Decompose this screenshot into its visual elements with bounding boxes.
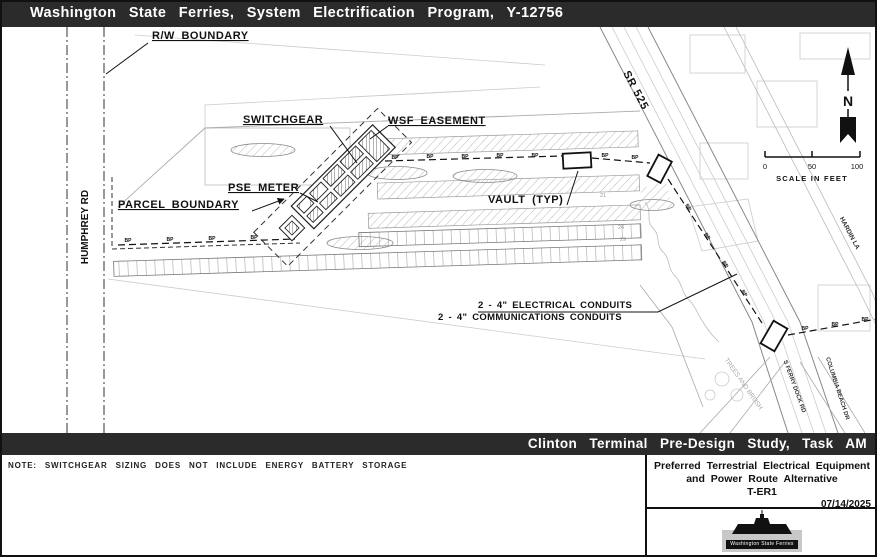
- bp-marker: BP: [832, 322, 840, 328]
- scale-50: 50: [808, 162, 816, 171]
- bp-marker: BP: [209, 236, 217, 242]
- pse-meter-label: PSE METER: [228, 182, 299, 194]
- sheet-title: Washington State Ferries, System Electri…: [30, 5, 563, 21]
- sheet-header-banner: Washington State Ferries, System Electri…: [0, 0, 877, 27]
- bp-marker: BP: [632, 155, 640, 161]
- stall-number: 24: [618, 225, 624, 231]
- title-line-1: Preferred Terrestrial Electrical Equipme…: [647, 460, 877, 473]
- site-plan-area: BP BP BP BP BP BP BP BP BP BP BP BP BP B…: [0, 27, 877, 433]
- vault-2: [647, 155, 672, 183]
- parcel-boundary-label: PARCEL BOUNDARY: [118, 199, 239, 211]
- vault-1: [563, 152, 592, 168]
- wsf-easement-label: WSF EASEMENT: [388, 115, 486, 127]
- hardin-la-label: HARDIN LA: [838, 216, 861, 251]
- bp-marker: BP: [602, 153, 610, 159]
- humphrey-rd-label: HUMPHREY RD: [80, 190, 91, 264]
- north-arrow: N: [840, 47, 856, 143]
- switchgear-label: SWITCHGEAR: [243, 114, 323, 126]
- s-ferry-dock-rd-label: S FERRY DOCK RD: [782, 360, 807, 415]
- vault-3: [761, 321, 788, 352]
- columbia-beach-dr-label: COLUMBIA BEACH DR: [824, 357, 850, 422]
- title-block-text: Preferred Terrestrial Electrical Equipme…: [647, 455, 877, 507]
- logo-area: Washington State Ferries: [647, 507, 877, 555]
- logo-text: Washington State Ferries: [726, 540, 798, 549]
- electrical-conduits-label: 2 - 4" ELECTRICAL CONDUITS: [478, 300, 632, 311]
- title-line-3: T-ER1: [647, 486, 877, 499]
- plan-sheet: Washington State Ferries, System Electri…: [0, 0, 877, 557]
- sheet-note: NOTE: SWITCHGEAR SIZING DOES NOT INCLUDE…: [8, 461, 407, 470]
- bp-marker: BP: [125, 238, 133, 244]
- scale-bar: [765, 151, 860, 157]
- bp-marker: BP: [497, 153, 505, 159]
- sheet-footer: NOTE: SWITCHGEAR SIZING DOES NOT INCLUDE…: [0, 455, 877, 557]
- bp-marker: BP: [862, 317, 870, 323]
- trees-label: TREES AND BRUSH: [723, 357, 764, 412]
- scale-caption: SCALE IN FEET: [776, 174, 848, 183]
- vault-typ-label: VAULT (TYP): [488, 194, 563, 206]
- communications-conduits-label: 2 - 4" COMMUNICATIONS CONDUITS: [438, 312, 622, 323]
- bp-marker: BP: [802, 326, 810, 332]
- ferry-icon: [730, 510, 794, 536]
- rw-boundary-label: R/W BOUNDARY: [152, 30, 249, 42]
- bp-marker: BP: [167, 237, 175, 243]
- bp-marker: BP: [532, 153, 540, 159]
- bp-marker: BP: [427, 154, 435, 160]
- wsf-logo: Washington State Ferries: [719, 510, 805, 554]
- title-block: Preferred Terrestrial Electrical Equipme…: [645, 455, 877, 557]
- stall-number: 29: [620, 237, 626, 243]
- study-title-banner: Clinton Terminal Pre-Design Study, Task …: [0, 433, 877, 455]
- bp-marker: BP: [462, 154, 470, 160]
- scale-100: 100: [851, 162, 864, 171]
- sr525-label: SR 525: [620, 69, 651, 112]
- scale-0: 0: [763, 162, 767, 171]
- study-title: Clinton Terminal Pre-Design Study, Task …: [528, 436, 867, 451]
- site-plan-map: BP BP BP BP BP BP BP BP BP BP BP BP BP B…: [0, 27, 877, 433]
- title-line-2: and Power Route Alternative: [647, 473, 877, 486]
- north-letter: N: [843, 93, 853, 109]
- bp-marker: BP: [720, 260, 729, 270]
- bp-marker: BP: [739, 289, 748, 299]
- stall-number: 21: [600, 193, 606, 199]
